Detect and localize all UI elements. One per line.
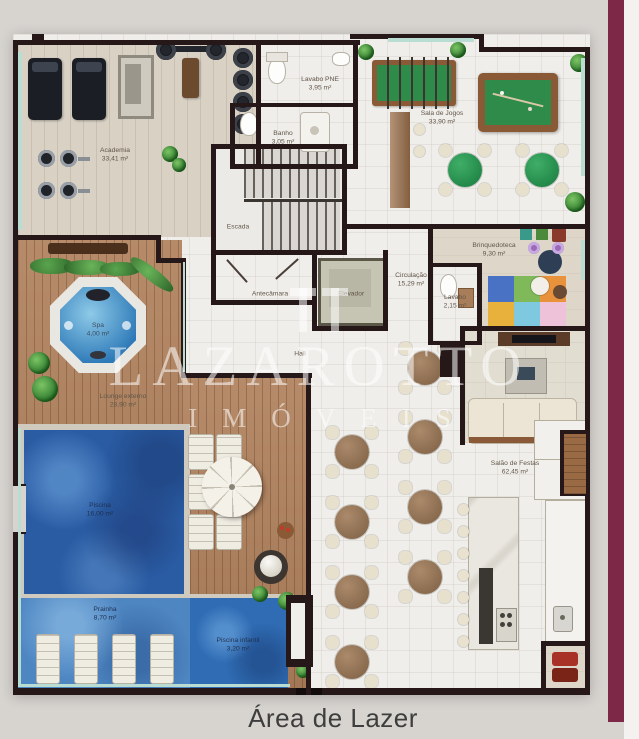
water-lounger [150, 634, 174, 684]
plant-icon [565, 192, 585, 212]
treadmill [72, 58, 106, 120]
bar-stool [414, 146, 425, 157]
island-stool [458, 570, 469, 581]
chair-icon [399, 590, 412, 603]
dining-table [335, 435, 369, 469]
stair-rail [244, 199, 342, 202]
chair-icon [365, 465, 378, 478]
island-stool [458, 592, 469, 603]
gym-multistation [118, 55, 154, 119]
chair-icon [516, 183, 529, 196]
island-stool [458, 504, 469, 515]
wood-cabinet [564, 434, 586, 494]
chair-icon [399, 450, 412, 463]
maroon-accent-bar [608, 0, 624, 722]
chair-icon [326, 675, 339, 688]
chair-icon [399, 520, 412, 533]
chair-icon [438, 481, 451, 494]
tv-console [498, 332, 570, 346]
game-table [448, 153, 482, 187]
chair-icon [326, 465, 339, 478]
billiards-table [478, 73, 558, 132]
room-label-lavabo-pne: Lavabo PNE3,95 m² [301, 75, 339, 92]
chair-icon [439, 144, 452, 157]
chair-icon [365, 675, 378, 688]
chair-icon [555, 183, 568, 196]
treadmill [28, 58, 62, 120]
chair-icon [478, 144, 491, 157]
sun-lounger [216, 514, 242, 550]
sink-icon [332, 52, 350, 66]
chair-icon [365, 426, 378, 439]
toy-icon [552, 228, 566, 242]
room-label-academia: Academia33,41 m² [100, 146, 130, 163]
gameroom-window-glass [581, 58, 585, 176]
room-label-lavabo: Lavabo2,15 m² [444, 293, 467, 310]
room-label-prainha: Prainha8,70 m² [93, 605, 116, 622]
chair-icon [438, 590, 451, 603]
room-label-hall: Hall [294, 350, 306, 359]
gym-window-glass [18, 52, 22, 230]
chair-icon [326, 636, 339, 649]
grill-icon [552, 652, 578, 666]
chair-icon [439, 183, 452, 196]
play-mat [488, 276, 566, 328]
weight-plate-stack [233, 70, 253, 90]
dining-table [408, 420, 442, 454]
chair-icon [326, 496, 339, 509]
playroom-window-glass [581, 240, 585, 280]
page-title: Área de Lazer [248, 703, 418, 734]
chair-icon [326, 566, 339, 579]
bar-counter [390, 112, 410, 208]
chair-icon [438, 450, 451, 463]
grill-icon [552, 668, 578, 682]
exercise-bike [38, 182, 90, 202]
dining-table [335, 575, 369, 609]
room-label-piscina: Piscina16,00 m² [87, 501, 114, 518]
room-label-escada: Escada [227, 223, 249, 232]
pool-fence-glass-left [18, 428, 21, 686]
kitchen-island [468, 497, 519, 650]
toy-icon [520, 228, 532, 240]
plant-icon [358, 44, 374, 60]
chair-icon [399, 342, 412, 355]
weight-plate-stack [233, 48, 253, 68]
room-label-brinquedoteca: Brinquedoteca9,30 m² [472, 241, 515, 258]
chair-icon [365, 605, 378, 618]
plant-icon [172, 158, 186, 172]
chair-icon [438, 381, 451, 394]
kitchen-counter [545, 500, 586, 645]
planter [254, 550, 288, 584]
service-door [291, 603, 305, 659]
chair-icon [365, 636, 378, 649]
workout-bench [182, 58, 199, 98]
room-label-antecamara: Antecâmara [252, 290, 288, 299]
side-table [277, 522, 294, 539]
toy-icon [536, 228, 548, 240]
toilet-tank-icon [266, 52, 288, 62]
floorplan-leisure-area: Academia33,41 m² Lavabo PNE3,95 m² Banho… [0, 0, 639, 739]
chair-icon [516, 144, 529, 157]
room-label-spa: Spa4,00 m² [87, 321, 110, 338]
chair-icon [399, 411, 412, 424]
parasol [202, 457, 262, 517]
bench [48, 243, 128, 254]
water-lounger [74, 634, 98, 684]
desk [505, 358, 547, 394]
hall-glass-wall [183, 262, 185, 372]
dining-table [408, 351, 442, 385]
bush-icon [252, 586, 268, 602]
bush-icon [28, 352, 50, 374]
beanbag-icon [553, 285, 567, 299]
foosball-table [372, 60, 456, 106]
chair-icon [478, 183, 491, 196]
water-lounger [36, 634, 60, 684]
room-label-piscina-infantil: Piscina infantil3,20 m² [217, 636, 260, 653]
room-label-circulacao: Circulação15,29 m² [395, 271, 427, 288]
pool-fence-glass-bottom [18, 684, 290, 687]
chair-icon [326, 605, 339, 618]
island-stool [458, 636, 469, 647]
bush-icon [32, 376, 58, 402]
stair-flight-lower [262, 202, 340, 251]
plant-icon [450, 42, 466, 58]
toy-icon [528, 242, 540, 254]
gameroom-window-glass [388, 38, 474, 42]
room-label-sala-de-jogos: Sala de Jogos33,90 m² [421, 109, 464, 126]
chair-icon [365, 496, 378, 509]
chair-icon [365, 566, 378, 579]
beanbag-icon [531, 277, 549, 295]
sun-lounger [188, 514, 214, 550]
chair-icon [365, 535, 378, 548]
chair-icon [399, 481, 412, 494]
chair-icon [399, 381, 412, 394]
dining-table [408, 490, 442, 524]
water-lounger [112, 634, 136, 684]
chair-icon [326, 426, 339, 439]
chair-icon [438, 551, 451, 564]
right-margin-strip [624, 0, 639, 739]
dining-table [335, 645, 369, 679]
island-stool [458, 548, 469, 559]
room-label-elevador: Elevador [338, 290, 365, 299]
dining-table [408, 560, 442, 594]
island-stool [458, 614, 469, 625]
dining-table [335, 505, 369, 539]
room-label-lounge-externo: Lounge externo28,90 m² [100, 392, 147, 409]
chair-icon [555, 144, 568, 157]
chair-icon [399, 551, 412, 564]
toy-icon [552, 242, 564, 254]
chair-icon [438, 411, 451, 424]
weight-plate-stack [233, 92, 253, 112]
exercise-bike [38, 150, 90, 170]
chair-icon [326, 535, 339, 548]
room-label-salao-de-festas: Salão de Festas62,45 m² [491, 459, 540, 476]
game-table [525, 153, 559, 187]
room-label-banho: Banho3,05 m² [272, 129, 295, 146]
island-stool [458, 526, 469, 537]
chair-icon [438, 520, 451, 533]
